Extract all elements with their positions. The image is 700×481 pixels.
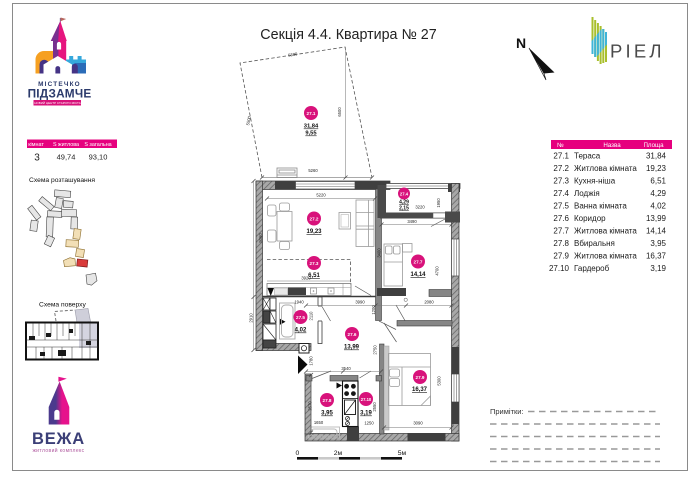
svg-text:3400: 3400: [377, 248, 382, 258]
svg-text:3220: 3220: [415, 205, 425, 210]
svg-text:2910: 2910: [249, 313, 254, 323]
svg-text:6,51: 6,51: [650, 177, 666, 186]
svg-text:31,84: 31,84: [304, 124, 319, 130]
svg-text:49,74: 49,74: [57, 153, 76, 162]
svg-text:1940: 1940: [294, 300, 304, 305]
svg-text:Лоджія: Лоджія: [574, 189, 600, 198]
svg-text:27.5: 27.5: [296, 315, 305, 320]
svg-text:27.6: 27.6: [348, 332, 357, 337]
svg-text:ПІДЗАМЧЕ: ПІДЗАМЧЕ: [28, 87, 92, 101]
svg-text:3,95: 3,95: [321, 411, 333, 417]
svg-text:4700: 4700: [435, 266, 440, 276]
svg-text:27.4: 27.4: [400, 192, 409, 197]
svg-text:Схема розташування: Схема розташування: [29, 177, 95, 184]
svg-text:1950: 1950: [436, 198, 441, 208]
svg-text:27.8: 27.8: [323, 398, 332, 403]
svg-text:5м: 5м: [398, 450, 407, 457]
svg-text:Ванна кімната: Ванна кімната: [574, 202, 627, 211]
svg-text:N: N: [516, 35, 526, 51]
svg-text:2570: 2570: [308, 401, 313, 411]
svg-text:27.8: 27.8: [553, 239, 569, 248]
svg-text:Коридор: Коридор: [574, 214, 606, 223]
svg-text:27.3: 27.3: [553, 177, 569, 186]
svg-text:3490: 3490: [407, 219, 417, 224]
svg-text:Схема поверху: Схема поверху: [39, 302, 87, 309]
svg-text:4,29: 4,29: [650, 189, 666, 198]
svg-text:4,02: 4,02: [650, 202, 666, 211]
svg-text:Тераса: Тераса: [574, 152, 601, 161]
svg-text:19,23: 19,23: [646, 164, 667, 173]
svg-text:19,23: 19,23: [306, 229, 322, 235]
svg-text:Секція 4.4. Квартира № 27: Секція 4.4. Квартира № 27: [260, 27, 436, 43]
svg-text:2110: 2110: [309, 311, 314, 321]
svg-text:4,02: 4,02: [295, 328, 307, 334]
svg-text:3,19: 3,19: [650, 264, 666, 273]
svg-text:кімнат: кімнат: [28, 142, 44, 148]
svg-text:1200: 1200: [371, 305, 376, 315]
svg-text:3090: 3090: [413, 421, 423, 426]
svg-text:27.3: 27.3: [310, 261, 319, 266]
svg-text:5220: 5220: [316, 193, 326, 198]
svg-text:31,84: 31,84: [646, 152, 667, 161]
svg-text:27.10: 27.10: [361, 397, 372, 402]
svg-text:5060: 5060: [258, 233, 263, 243]
svg-text:5300: 5300: [437, 376, 442, 386]
svg-text:Вбиральня: Вбиральня: [574, 239, 615, 248]
svg-text:16,37: 16,37: [412, 387, 428, 393]
svg-text:13,99: 13,99: [646, 214, 667, 223]
svg-text:27.6: 27.6: [553, 214, 569, 223]
svg-text:2,15: 2,15: [399, 206, 409, 212]
svg-text:НОВИЙ ЦЕНТР СТАРОГО МІСТА: НОВИЙ ЦЕНТР СТАРОГО МІСТА: [34, 101, 81, 105]
svg-text:0: 0: [296, 450, 300, 457]
svg-text:27.1: 27.1: [553, 152, 569, 161]
svg-text:5260: 5260: [308, 168, 318, 173]
svg-text:Житлова кімната: Житлова кімната: [574, 227, 637, 236]
svg-text:16,37: 16,37: [646, 252, 667, 261]
svg-text:РІЕЛ: РІЕЛ: [610, 41, 665, 62]
svg-text:14,14: 14,14: [646, 227, 667, 236]
svg-text:27.7: 27.7: [414, 260, 423, 265]
svg-text:Назва: Назва: [603, 142, 621, 149]
svg-text:14,14: 14,14: [410, 272, 426, 278]
svg-text:Житлова кімната: Житлова кімната: [574, 252, 637, 261]
svg-text:27.5: 27.5: [553, 202, 569, 211]
svg-text:3: 3: [34, 153, 40, 164]
svg-text:S загальна: S загальна: [84, 142, 111, 148]
svg-text:2550: 2550: [372, 402, 377, 412]
svg-text:житловий комплекс: житловий комплекс: [32, 447, 84, 454]
svg-text:6,51: 6,51: [308, 273, 320, 279]
svg-text:2м: 2м: [334, 450, 343, 457]
svg-text:93,10: 93,10: [89, 153, 108, 162]
svg-text:3,95: 3,95: [650, 239, 666, 248]
svg-text:27.2: 27.2: [310, 217, 319, 222]
svg-text:9,55: 9,55: [305, 131, 317, 137]
svg-text:1650: 1650: [314, 420, 324, 425]
svg-text:27.4: 27.4: [553, 189, 569, 198]
svg-text:2080: 2080: [424, 300, 434, 305]
svg-text:27.2: 27.2: [553, 164, 569, 173]
svg-text:S житлова: S житлова: [53, 142, 79, 148]
svg-text:27.9: 27.9: [416, 375, 425, 380]
svg-text:27.10: 27.10: [549, 264, 570, 273]
svg-text:Кухня-ніша: Кухня-ніша: [574, 177, 616, 186]
svg-text:№: №: [557, 142, 564, 149]
svg-text:27.1: 27.1: [307, 111, 316, 116]
svg-text:Гардероб: Гардероб: [574, 264, 610, 273]
svg-text:Житлова кімната: Житлова кімната: [574, 164, 637, 173]
svg-text:3990: 3990: [355, 300, 365, 305]
svg-text:2750: 2750: [373, 345, 378, 355]
svg-text:27.9: 27.9: [553, 252, 569, 261]
svg-text:3540: 3540: [341, 366, 351, 371]
svg-text:6500: 6500: [337, 107, 342, 117]
svg-text:1250: 1250: [364, 421, 374, 426]
svg-text:Площа: Площа: [643, 142, 664, 149]
svg-text:Примітки:: Примітки:: [490, 407, 524, 416]
svg-text:3,19: 3,19: [360, 411, 372, 417]
svg-text:1780: 1780: [309, 356, 314, 366]
svg-text:27.7: 27.7: [553, 227, 569, 236]
svg-text:ВЕЖА: ВЕЖА: [32, 430, 85, 448]
svg-text:13,99: 13,99: [344, 345, 360, 351]
